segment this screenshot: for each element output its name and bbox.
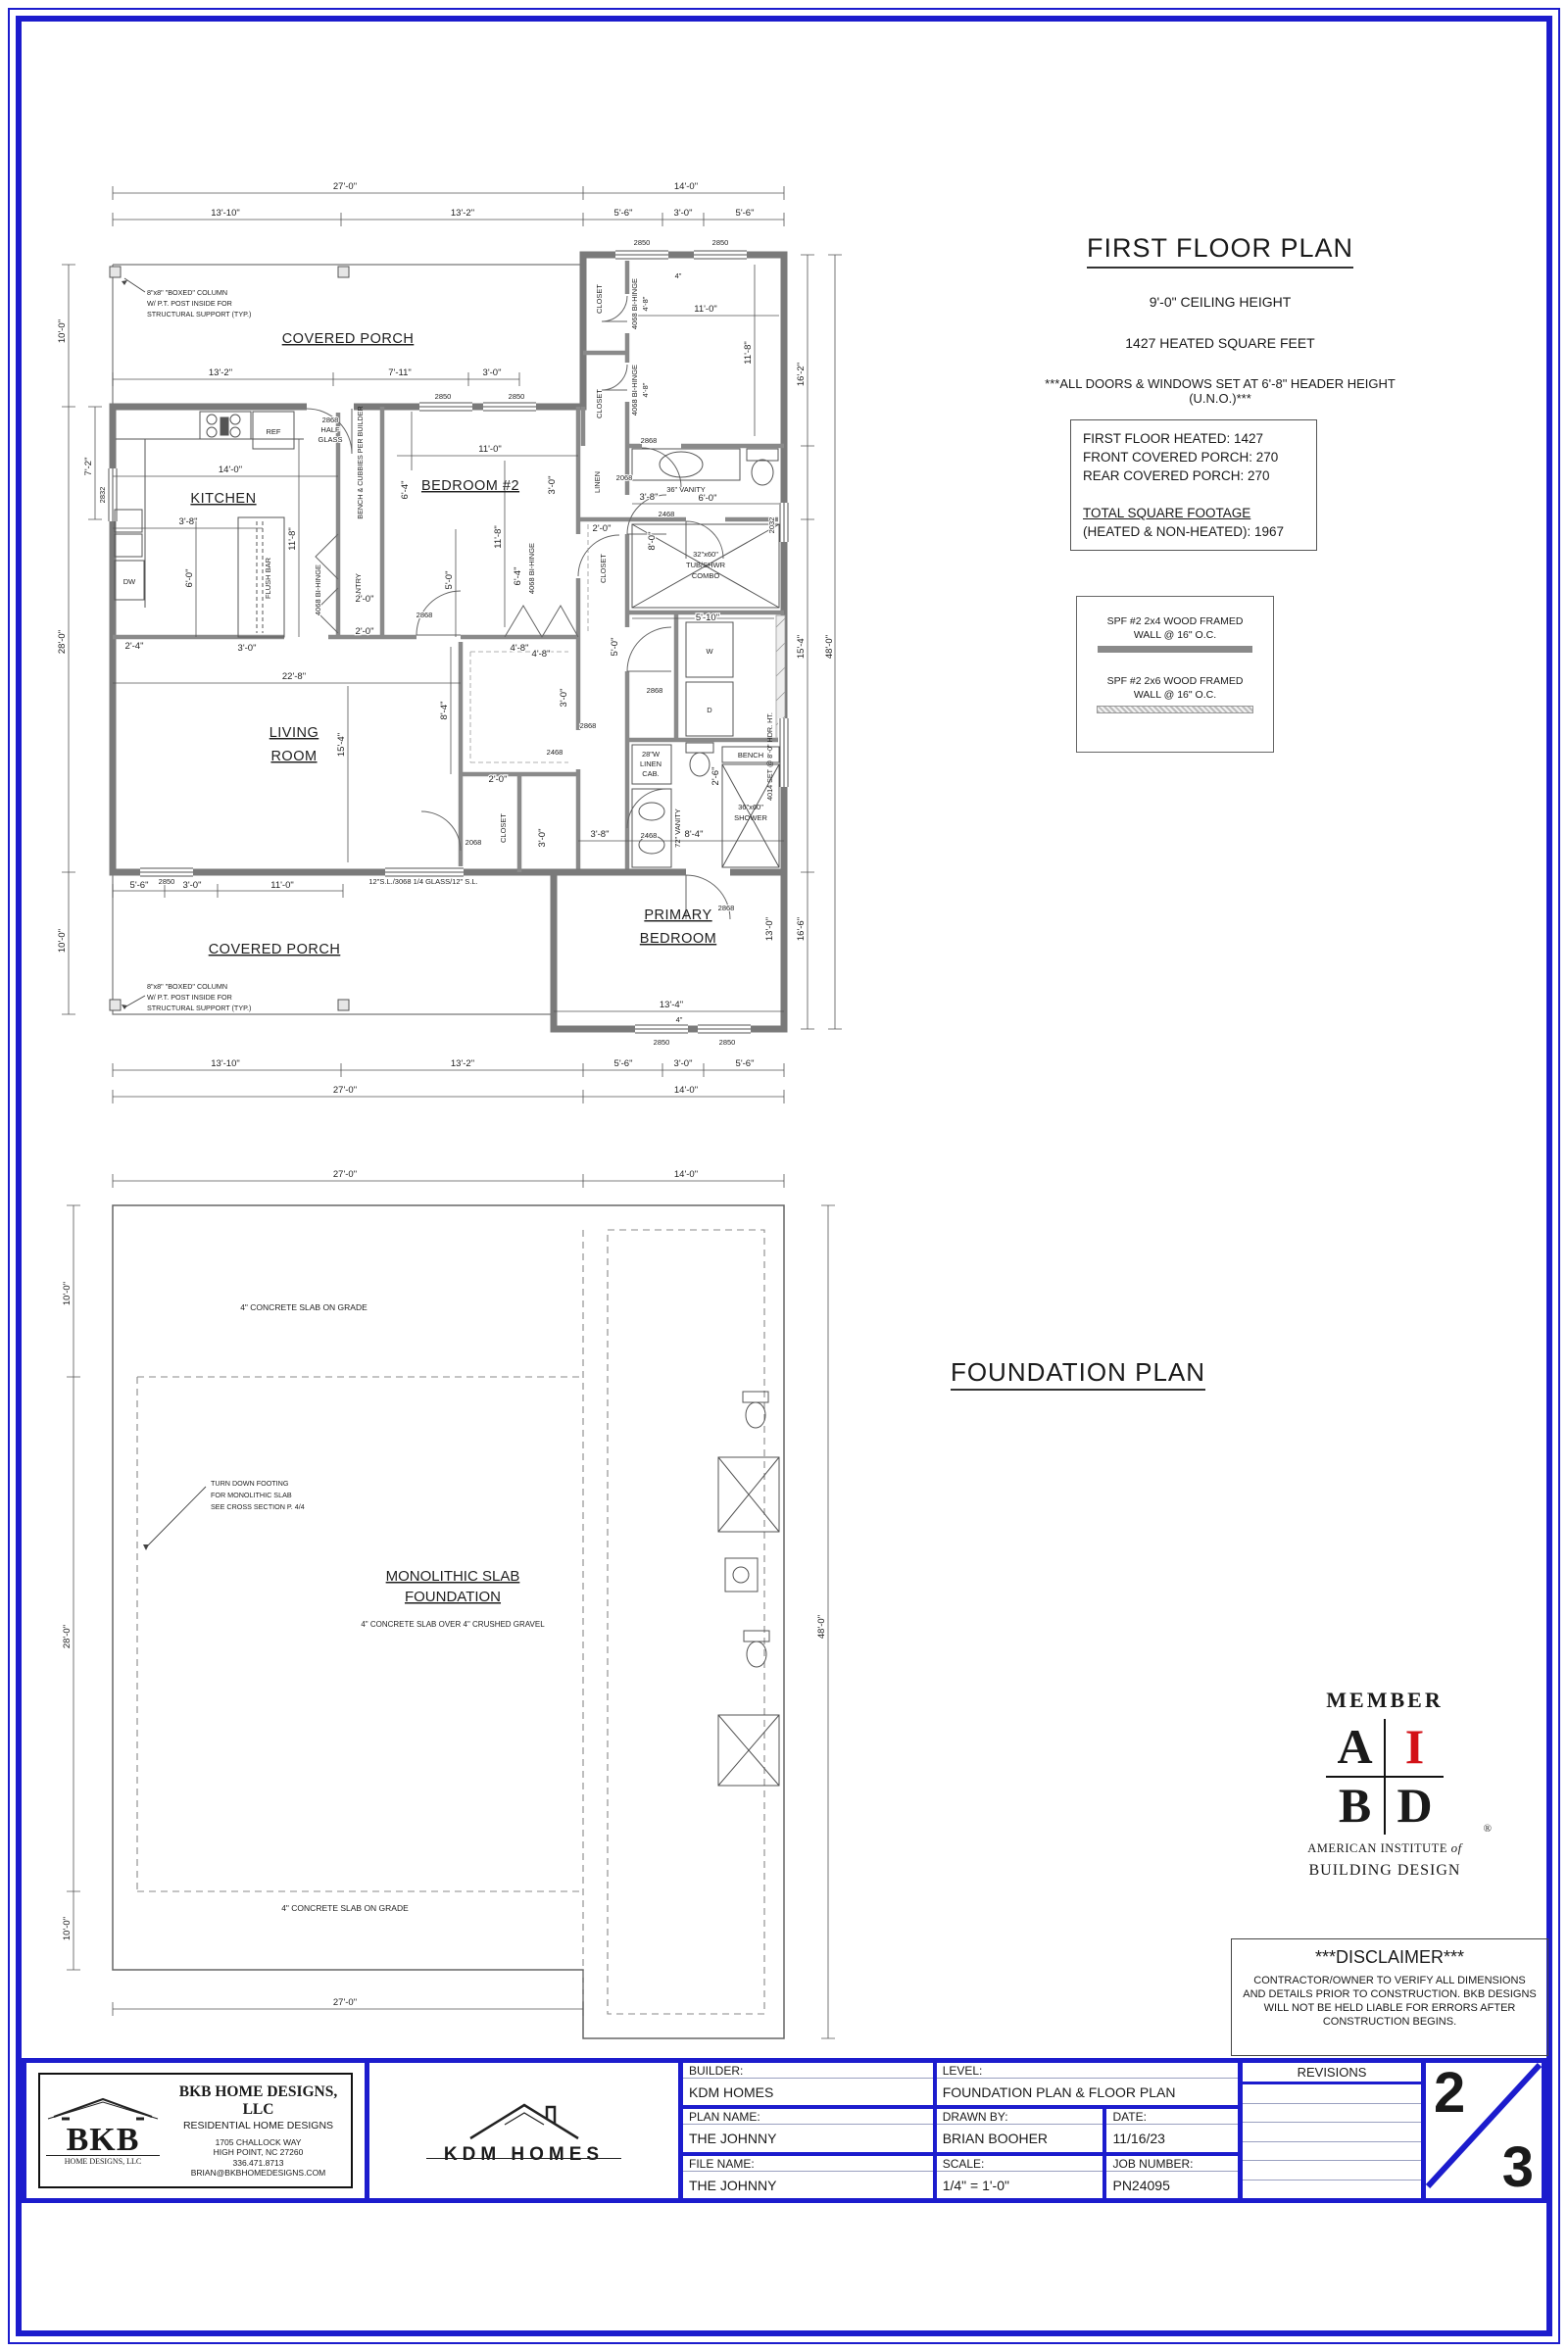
level-value: FOUNDATION PLAN & FLOOR PLAN bbox=[937, 2079, 1238, 2105]
field-scale: SCALE: 1/4" = 1'-0" bbox=[937, 2156, 1103, 2198]
dim-label: 13'-4" bbox=[660, 1000, 683, 1010]
dim-label: 48'-0" bbox=[816, 1615, 827, 1639]
dim-label: 5'-6" bbox=[736, 208, 755, 219]
aibd-letter-i: I bbox=[1386, 1719, 1444, 1778]
door-tag: 4068 BI-HINGE bbox=[314, 564, 322, 615]
dim-label: 11'-0" bbox=[478, 444, 502, 455]
dim-label: 3'-0" bbox=[183, 880, 202, 891]
dim-label: 7'-2" bbox=[83, 458, 94, 476]
dim-label: 2'-0" bbox=[356, 594, 374, 605]
header-height-note: ***ALL DOORS & WINDOWS SET AT 6'-8" HEAD… bbox=[1019, 376, 1421, 406]
builder-value: KDM HOMES bbox=[683, 2079, 933, 2105]
area-line: REAR COVERED PORCH: 270 bbox=[1083, 466, 1316, 485]
door-tag: 2868 bbox=[718, 904, 735, 912]
title-block: BKB HOME DESIGNS, LLC BKB HOME DESIGNS, … bbox=[22, 2058, 1546, 2203]
first-floor-plan-drawing: 27'-0" 14'-0" 13'-10" 13'-2" 5'-6" 3'-0"… bbox=[54, 147, 857, 1137]
dim-label: 11'-8" bbox=[743, 341, 754, 365]
scale-value: 1/4" = 1'-0" bbox=[937, 2172, 1103, 2198]
drawn-by-label: DRAWN BY: bbox=[937, 2109, 1103, 2125]
fixture-label-washer: W bbox=[706, 647, 713, 656]
column-note: STRUCTURAL SUPPORT (TYP.) bbox=[147, 1004, 251, 1012]
slab-note: 4" CONCRETE SLAB ON GRADE bbox=[240, 1302, 367, 1312]
dim-label: 6'-4" bbox=[513, 567, 523, 586]
door-tag: 2868 bbox=[416, 611, 433, 619]
column-note: 8"x8" "BOXED" COLUMN bbox=[147, 288, 227, 297]
dimension-lines bbox=[62, 186, 842, 1103]
dim-label: 14'-0" bbox=[674, 1085, 698, 1096]
bkb-addr2: HIGH POINT, NC 27260 bbox=[166, 2147, 351, 2158]
file-name-value: THE JOHNNY bbox=[683, 2172, 933, 2198]
door-tag: 4068 BI-HINGE bbox=[527, 543, 536, 594]
kdm-logo-text: KDM HOMES bbox=[444, 2144, 604, 2166]
dim-label: 5'-6" bbox=[614, 208, 633, 219]
sheet-number-cell: 2 3 bbox=[1426, 2063, 1542, 2198]
dim-label: 13'-10" bbox=[211, 1058, 239, 1069]
dim-label: 16'-2" bbox=[796, 363, 807, 386]
legend-2x6-label2: WALL @ 16" O.C. bbox=[1077, 688, 1273, 702]
dim-label: 5'-0" bbox=[610, 638, 620, 657]
column-note: STRUCTURAL SUPPORT (TYP.) bbox=[147, 310, 251, 318]
level-label: LEVEL: bbox=[937, 2063, 1238, 2079]
fixture-label-linen-cab: 28"W bbox=[642, 750, 661, 759]
bkb-cell: BKB HOME DESIGNS, LLC BKB HOME DESIGNS, … bbox=[26, 2063, 365, 2198]
door-tag: 2068 bbox=[465, 838, 482, 847]
sheet-number-total: 3 bbox=[1502, 2139, 1534, 2196]
slab-note: 4" CONCRETE SLAB ON GRADE bbox=[281, 1903, 409, 1913]
bkb-logo-subtext: HOME DESIGNS, LLC bbox=[46, 2155, 160, 2166]
area-summary-box: FIRST FLOOR HEATED: 1427 FRONT COVERED P… bbox=[1070, 419, 1317, 551]
room-label-covered-porch-top: COVERED PORCH bbox=[282, 331, 415, 347]
dim-label: 3'-0" bbox=[559, 689, 569, 708]
dim-label: 5'-6" bbox=[130, 880, 149, 891]
dim-label: 7'-11" bbox=[388, 367, 412, 378]
foundation-plumbing bbox=[718, 1392, 779, 1786]
revisions-cell: REVISIONS bbox=[1243, 2063, 1421, 2198]
plan-name-label: PLAN NAME: bbox=[683, 2109, 933, 2125]
dim-label: 13'-2" bbox=[451, 208, 474, 219]
door-gaps bbox=[307, 402, 354, 413]
fixture-label-tub: 32"x60" bbox=[693, 550, 718, 559]
dim-label: 6'-4" bbox=[400, 481, 411, 500]
title-block-fields: BUILDER: KDM HOMES LEVEL: FOUNDATION PLA… bbox=[683, 2063, 1238, 2198]
room-label-primary: PRIMARY bbox=[644, 907, 711, 923]
note-bench-cubbies: BENCH & CUBBIES PER BUILDER bbox=[356, 406, 365, 518]
dim-label: 27'-0" bbox=[333, 1997, 357, 2008]
dim-label: 11'-8" bbox=[493, 525, 504, 549]
bkb-address: 1705 CHALLOCK WAY HIGH POINT, NC 27260 3… bbox=[166, 2137, 351, 2179]
dim-label: 3'-0" bbox=[674, 1058, 693, 1069]
dim-label: 14'-0" bbox=[219, 465, 242, 475]
dim-label: 8'-0" bbox=[647, 532, 658, 551]
window-tag: 2832 bbox=[98, 487, 107, 504]
door-tag: HALF bbox=[320, 425, 340, 434]
column-note: W/ P.T. POST INSIDE FOR bbox=[147, 299, 232, 308]
door-tag: 4068 BI-HINGE bbox=[630, 278, 639, 329]
window-tag: 2850 bbox=[719, 1038, 736, 1047]
dim-label: 4'-8" bbox=[511, 643, 529, 654]
dim-label: 5'-10" bbox=[696, 612, 719, 623]
room-label-primary: BEDROOM bbox=[640, 931, 716, 947]
dim-label: 3'-8" bbox=[640, 492, 659, 503]
foundation-plan-title: FOUNDATION PLAN bbox=[951, 1357, 1205, 1391]
dim-label: 2'-4" bbox=[125, 641, 144, 652]
window-tag: 2850 bbox=[634, 238, 651, 247]
aibd-letters: A I B D bbox=[1326, 1719, 1444, 1835]
door-tag: 2468 bbox=[641, 831, 658, 840]
bkb-logo: BKB HOME DESIGNS, LLC bbox=[40, 2095, 166, 2166]
disclaimer-title: ***DISCLAIMER*** bbox=[1232, 1947, 1547, 1968]
door-tag: 2868 bbox=[580, 721, 597, 730]
dim-label: 5'-6" bbox=[736, 1058, 755, 1069]
kitchen-fixtures bbox=[115, 412, 304, 637]
dim-label: 8'-4" bbox=[439, 702, 450, 720]
window-tag: 2850 bbox=[159, 877, 175, 886]
foundation-plan-heading: FOUNDATION PLAN bbox=[931, 1357, 1225, 1388]
door-tag: 2868 bbox=[322, 416, 339, 424]
fixture-label-vanity72: 72" VANITY bbox=[673, 808, 682, 848]
bkb-addr1: 1705 CHALLOCK WAY bbox=[166, 2137, 351, 2148]
bkb-logo-text: BKB bbox=[40, 2126, 166, 2155]
dim-label: 4" bbox=[675, 271, 682, 280]
aibd-letter-b: B bbox=[1326, 1778, 1386, 1835]
aibd-letter-a: A bbox=[1326, 1719, 1386, 1778]
dim-label: 14'-0" bbox=[674, 1169, 698, 1180]
dim-label: 3'-8" bbox=[591, 829, 610, 840]
fixture-label-tub: COMBO bbox=[692, 571, 720, 580]
aibd-letter-d: D bbox=[1386, 1778, 1444, 1835]
dim-label: 11'-0" bbox=[694, 304, 717, 315]
dim-label: 4'-8" bbox=[641, 296, 650, 311]
kdm-roof-icon bbox=[451, 2095, 598, 2142]
bkb-tagline: RESIDENTIAL HOME DESIGNS bbox=[166, 2120, 351, 2131]
dim-label: 4'-8" bbox=[532, 649, 551, 660]
monolithic-slab-label: FOUNDATION bbox=[405, 1589, 501, 1605]
job-number-label: JOB NUMBER: bbox=[1106, 2156, 1238, 2172]
file-name-label: FILE NAME: bbox=[683, 2156, 933, 2172]
fixture-label-closet: CLOSET bbox=[499, 813, 508, 843]
field-date: DATE: 11/16/23 bbox=[1106, 2109, 1238, 2151]
revision-row bbox=[1243, 2104, 1421, 2124]
dim-label: 5'-0" bbox=[444, 571, 455, 590]
revision-row bbox=[1243, 2123, 1421, 2142]
window-tag: 2850 bbox=[509, 392, 525, 401]
field-drawn-by: DRAWN BY: BRIAN BOOHER bbox=[937, 2109, 1103, 2151]
fixture-label-linen: LINEN bbox=[593, 471, 602, 493]
date-value: 11/16/23 bbox=[1106, 2125, 1238, 2151]
date-label: DATE: bbox=[1106, 2109, 1238, 2125]
fixture-label-bench: BENCH bbox=[738, 751, 763, 759]
dim-label: 8'-4" bbox=[685, 829, 704, 840]
dim-label: 2'-0" bbox=[593, 523, 612, 534]
dim-label: 48'-0" bbox=[824, 635, 835, 659]
first-floor-header: FIRST FLOOR PLAN 9'-0" CEILING HEIGHT 14… bbox=[1019, 233, 1421, 406]
revision-row bbox=[1243, 2084, 1421, 2104]
bkb-frame: BKB HOME DESIGNS, LLC BKB HOME DESIGNS, … bbox=[38, 2073, 353, 2188]
dim-label: 27'-0" bbox=[333, 1169, 357, 1180]
dim-label: 13'-2" bbox=[451, 1058, 474, 1069]
field-level: LEVEL: FOUNDATION PLAN & FLOOR PLAN bbox=[937, 2063, 1238, 2105]
plan-name-value: THE JOHNNY bbox=[683, 2125, 933, 2151]
dim-label: 2'-6" bbox=[710, 767, 721, 786]
legend-2x4-swatch bbox=[1098, 646, 1252, 653]
dim-label: 3'-0" bbox=[238, 643, 257, 654]
dim-label: 13'-0" bbox=[764, 917, 775, 941]
bkb-info: BKB HOME DESIGNS, LLC RESIDENTIAL HOME D… bbox=[166, 2083, 351, 2179]
room-label-living: LIVING bbox=[269, 725, 319, 741]
door-tag: 2468 bbox=[659, 510, 675, 518]
window-tag: 2850 bbox=[712, 238, 729, 247]
room-label-covered-porch-bottom: COVERED PORCH bbox=[209, 942, 341, 957]
dim-label: 10'-0" bbox=[57, 929, 68, 953]
fixture-label-linen-cab: LINEN bbox=[640, 759, 661, 768]
door-tag: 2068 bbox=[616, 473, 633, 482]
revision-row bbox=[1243, 2161, 1421, 2180]
dim-label: 28'-0" bbox=[62, 1625, 73, 1648]
first-floor-title: FIRST FLOOR PLAN bbox=[1087, 233, 1353, 269]
area-line: FRONT COVERED PORCH: 270 bbox=[1083, 448, 1316, 466]
dim-label: 10'-0" bbox=[62, 1282, 73, 1305]
window-tag: 2850 bbox=[654, 1038, 670, 1047]
fixture-label-tub: TUB/SHWR bbox=[686, 561, 726, 569]
disclaimer-box: ***DISCLAIMER*** CONTRACTOR/OWNER TO VER… bbox=[1231, 1938, 1548, 2056]
dim-label: 15'-4" bbox=[796, 635, 807, 659]
scale-label: SCALE: bbox=[937, 2156, 1103, 2172]
door-tag: 2868 bbox=[647, 686, 663, 695]
fixture-label-closet: CLOSET bbox=[599, 554, 608, 583]
builder-label: BUILDER: bbox=[683, 2063, 933, 2079]
dim-label: 11'-8" bbox=[287, 527, 298, 551]
fixture-label-shower: SHOWER bbox=[734, 813, 767, 822]
dim-label: 10'-0" bbox=[57, 319, 68, 343]
bkb-company-name: BKB HOME DESIGNS, LLC bbox=[166, 2083, 351, 2119]
field-job-number: JOB NUMBER: PN24095 bbox=[1106, 2156, 1238, 2198]
total-sqft-label: TOTAL SQUARE FOOTAGE bbox=[1083, 504, 1316, 522]
monolithic-slab-sub: 4" CONCRETE SLAB OVER 4" CRUSHED GRAVEL bbox=[361, 1620, 545, 1629]
dim-label: 15'-4" bbox=[336, 733, 347, 757]
column-note: 8"x8" "BOXED" COLUMN bbox=[147, 982, 227, 991]
job-number-value: PN24095 bbox=[1106, 2172, 1238, 2198]
dim-label: 11'-0" bbox=[270, 880, 294, 891]
dim-label: 3'-0" bbox=[483, 367, 502, 378]
area-line: FIRST FLOOR HEATED: 1427 bbox=[1083, 429, 1316, 448]
foundation-plan-drawing: 27'-0" 14'-0" 10'-0" 28'-0" 10'-0" 48'-0… bbox=[59, 1156, 862, 2087]
legend-2x6-swatch bbox=[1097, 706, 1253, 713]
disclaimer-body: CONTRACTOR/OWNER TO VERIFY ALL DIMENSION… bbox=[1232, 1968, 1547, 2029]
monolithic-slab-label: MONOLITHIC SLAB bbox=[386, 1568, 520, 1585]
dim-label: 6'-0" bbox=[699, 493, 717, 504]
revision-row bbox=[1243, 2180, 1421, 2199]
dim-label: 13'-10" bbox=[211, 208, 239, 219]
window-tag: 4014 SET @ 8'-0" HDR. HT. bbox=[765, 712, 774, 801]
drawn-by-value: BRIAN BOOHER bbox=[937, 2125, 1103, 2151]
door-tag: GLASS bbox=[318, 435, 342, 444]
interior-walls bbox=[113, 255, 784, 872]
dim-label: 10'-0" bbox=[62, 1917, 73, 1940]
fixture-label-dryer: D bbox=[707, 706, 712, 714]
aibd-institute-line: AMERICAN INSTITUTE of bbox=[1292, 1840, 1478, 1856]
field-plan-name: PLAN NAME: THE JOHNNY bbox=[683, 2109, 933, 2151]
bkb-phone: 336.471.8713 bbox=[166, 2158, 351, 2169]
revision-row bbox=[1243, 2142, 1421, 2162]
room-label-bedroom2: BEDROOM #2 bbox=[421, 478, 519, 494]
fixture-label-closet: CLOSET bbox=[595, 389, 604, 418]
column-note: W/ P.T. POST INSIDE FOR bbox=[147, 993, 232, 1002]
room-label-kitchen: KITCHEN bbox=[190, 491, 256, 507]
revisions-header: REVISIONS bbox=[1243, 2063, 1421, 2084]
turndown-note: SEE CROSS SECTION P. 4/4 bbox=[211, 1502, 305, 1511]
dim-label: 2'-0" bbox=[356, 626, 374, 637]
aibd-institute-text: AMERICAN INSTITUTE bbox=[1307, 1841, 1447, 1855]
fixture-label-flush-bar: FLUSH BAR bbox=[264, 557, 272, 599]
dim-label: 4" bbox=[676, 1015, 683, 1024]
dim-label: 14'-0" bbox=[674, 181, 698, 192]
heated-sqft-note: 1427 HEATED SQUARE FEET bbox=[1019, 335, 1421, 351]
dim-label: 2'-0" bbox=[489, 774, 508, 785]
aibd-member-text: MEMBER bbox=[1292, 1688, 1478, 1713]
bkb-roof-icon bbox=[44, 2095, 162, 2121]
door-tag: 4068 BI-HINGE bbox=[630, 365, 639, 416]
aibd-of-text: of bbox=[1451, 1840, 1462, 1855]
turndown-note: TURN DOWN FOOTING bbox=[211, 1479, 289, 1488]
kdm-cell: KDM HOMES bbox=[369, 2063, 678, 2198]
dim-label: 28'-0" bbox=[57, 630, 68, 654]
dim-label: 27'-0" bbox=[333, 181, 357, 192]
dim-label: 6'-0" bbox=[184, 569, 195, 588]
dim-label: 27'-0" bbox=[333, 1085, 357, 1096]
aibd-member-logo: MEMBER A I B D ® AMERICAN INSTITUTE of B… bbox=[1292, 1688, 1478, 1880]
dim-label: 4'-8" bbox=[641, 382, 650, 397]
window-tag: 2032 bbox=[767, 517, 776, 534]
closet-rod-lines bbox=[470, 652, 568, 762]
total-sqft-value: (HEATED & NON-HEATED): 1967 bbox=[1083, 522, 1316, 541]
legend-2x6-label: SPF #2 2x6 WOOD FRAMED bbox=[1077, 674, 1273, 688]
bkb-email: BRIAN@BKBHOMEDESIGNS.COM bbox=[166, 2168, 351, 2179]
ceiling-height-note: 9'-0" CEILING HEIGHT bbox=[1019, 294, 1421, 310]
room-label-living: ROOM bbox=[270, 749, 317, 764]
turndown-note: FOR MONOLITHIC SLAB bbox=[211, 1491, 292, 1499]
dim-label: 16'-6" bbox=[796, 917, 807, 941]
sheet-number-current: 2 bbox=[1434, 2065, 1465, 2122]
dim-label: 5'-6" bbox=[614, 1058, 633, 1069]
fixture-label-linen-cab: CAB. bbox=[642, 769, 660, 778]
dim-label: 22'-8" bbox=[282, 671, 306, 682]
legend-2x4-label2: WALL @ 16" O.C. bbox=[1077, 628, 1273, 642]
window-tag: 2850 bbox=[435, 392, 452, 401]
turndown-leader bbox=[143, 1487, 206, 1550]
dim-label: 13'-2" bbox=[209, 367, 232, 378]
legend-2x4-label: SPF #2 2x4 WOOD FRAMED bbox=[1077, 614, 1273, 628]
fixture-label-closet: CLOSET bbox=[595, 284, 604, 314]
fixture-label-dw: DW bbox=[123, 577, 136, 586]
dim-label: 3'-0" bbox=[674, 208, 693, 219]
dim-label: 3'-8" bbox=[179, 516, 198, 527]
fixture-label-shower: 36"x60" bbox=[738, 803, 763, 811]
door-tag-slider: 12"S.L./3068 1/4 GLASS/12" S.L. bbox=[368, 877, 477, 886]
door-tag: 2868 bbox=[641, 436, 658, 445]
door-tag: 2468 bbox=[547, 748, 563, 757]
field-file-name: FILE NAME: THE JOHNNY bbox=[683, 2156, 933, 2198]
aibd-building-design: BUILDING DESIGN bbox=[1292, 1862, 1478, 1880]
wall-legend: SPF #2 2x4 WOOD FRAMED WALL @ 16" O.C. S… bbox=[1076, 596, 1274, 753]
field-builder: BUILDER: KDM HOMES bbox=[683, 2063, 933, 2105]
dim-label: 3'-0" bbox=[537, 829, 548, 848]
fixture-label-ref: REF bbox=[267, 427, 281, 436]
dim-label: 3'-0" bbox=[547, 476, 558, 495]
